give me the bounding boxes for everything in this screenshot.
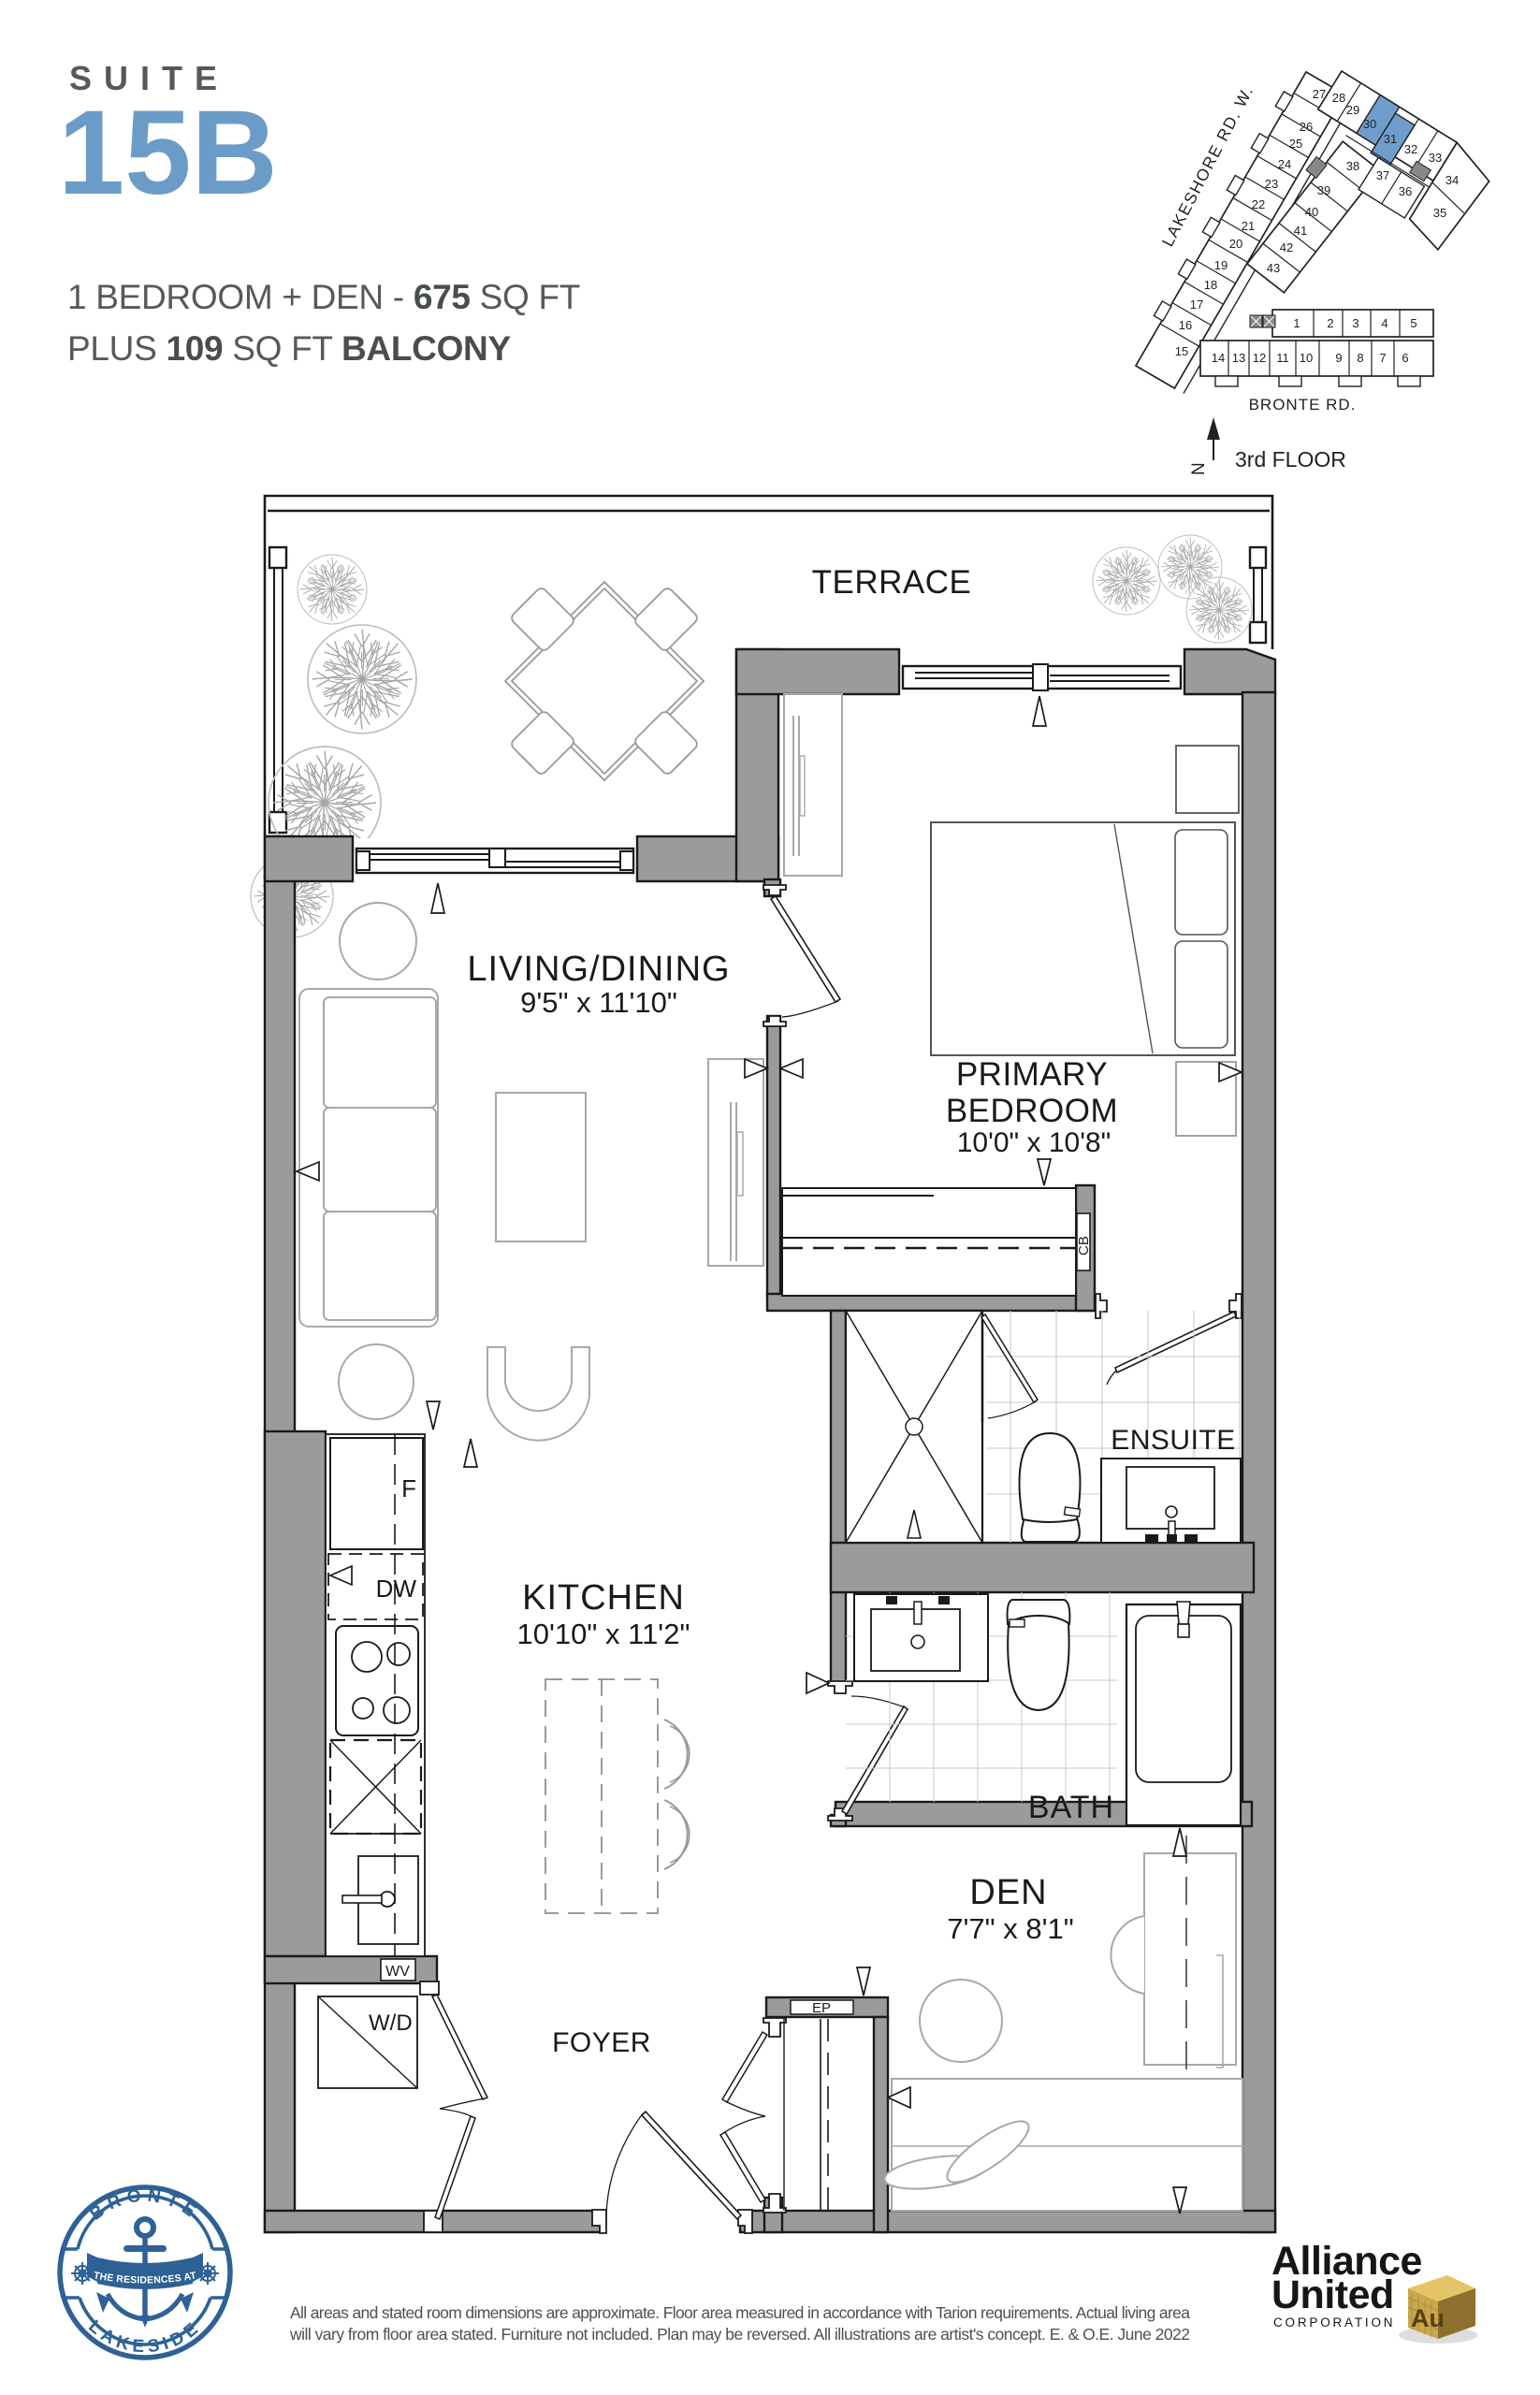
- svg-text:6: 6: [1402, 351, 1408, 365]
- svg-text:PLUS 109 SQ FT BALCONY: PLUS 109 SQ FT BALCONY: [67, 329, 511, 368]
- svg-text:DEN: DEN: [969, 1873, 1047, 1912]
- svg-text:32: 32: [1404, 142, 1417, 156]
- svg-text:All areas and stated room dime: All areas and stated room dimensions are…: [290, 2303, 1190, 2322]
- svg-text:5: 5: [1410, 316, 1417, 330]
- svg-text:30: 30: [1363, 117, 1376, 131]
- svg-text:15B: 15B: [58, 86, 278, 220]
- svg-text:18: 18: [1204, 278, 1217, 292]
- svg-text:WV: WV: [385, 1964, 410, 1980]
- svg-text:28: 28: [1332, 91, 1345, 105]
- svg-text:W/D: W/D: [369, 2010, 413, 2036]
- svg-text:26: 26: [1300, 120, 1313, 134]
- svg-text:FOYER: FOYER: [552, 2027, 651, 2058]
- svg-text:7: 7: [1379, 351, 1386, 365]
- svg-text:4: 4: [1381, 316, 1387, 330]
- svg-text:7'7" x 8'1": 7'7" x 8'1": [947, 1912, 1074, 1945]
- svg-text:KITCHEN: KITCHEN: [522, 1578, 685, 1618]
- svg-text:33: 33: [1429, 151, 1442, 165]
- svg-text:F: F: [401, 1474, 416, 1502]
- svg-text:TERRACE: TERRACE: [812, 564, 972, 601]
- svg-text:25: 25: [1289, 137, 1302, 151]
- svg-text:10'10" x 11'2": 10'10" x 11'2": [517, 1618, 690, 1650]
- svg-text:CB: CB: [1076, 1236, 1092, 1256]
- svg-text:37: 37: [1376, 168, 1389, 182]
- svg-text:United: United: [1271, 2272, 1394, 2317]
- svg-text:CORPORATION: CORPORATION: [1273, 2315, 1395, 2330]
- svg-text:ENSUITE: ENSUITE: [1111, 1425, 1236, 1456]
- svg-text:20: 20: [1229, 237, 1242, 251]
- svg-text:36: 36: [1399, 184, 1412, 198]
- svg-text:17: 17: [1190, 298, 1203, 312]
- svg-text:13: 13: [1232, 351, 1245, 365]
- svg-text:38: 38: [1346, 159, 1359, 173]
- svg-text:3: 3: [1352, 316, 1358, 330]
- svg-text:23: 23: [1265, 177, 1278, 191]
- svg-text:N: N: [1189, 462, 1209, 475]
- svg-text:BEDROOM: BEDROOM: [946, 1093, 1118, 1129]
- svg-text:11: 11: [1276, 351, 1289, 365]
- svg-text:27: 27: [1313, 87, 1326, 101]
- svg-text:34: 34: [1446, 173, 1459, 187]
- svg-text:22: 22: [1252, 197, 1265, 211]
- svg-text:29: 29: [1346, 103, 1359, 117]
- svg-text:9: 9: [1335, 351, 1342, 365]
- svg-text:43: 43: [1267, 261, 1280, 275]
- svg-text:Au: Au: [1411, 2304, 1445, 2332]
- svg-text:BRONTE RD.: BRONTE RD.: [1249, 396, 1357, 414]
- svg-text:will vary from floor area stat: will vary from floor area stated. Furnit…: [289, 2325, 1190, 2344]
- svg-text:BATH: BATH: [1028, 1790, 1114, 1825]
- svg-text:2: 2: [1327, 316, 1333, 330]
- svg-text:10: 10: [1300, 351, 1313, 365]
- svg-text:15: 15: [1175, 344, 1188, 358]
- svg-text:10'0" x 10'8": 10'0" x 10'8": [957, 1127, 1111, 1158]
- svg-text:PRIMARY: PRIMARY: [956, 1056, 1108, 1093]
- svg-text:21: 21: [1242, 219, 1255, 233]
- svg-text:DW: DW: [376, 1575, 417, 1603]
- svg-text:19: 19: [1214, 258, 1228, 272]
- svg-text:41: 41: [1294, 224, 1307, 238]
- svg-text:31: 31: [1384, 132, 1397, 146]
- svg-text:9'5" x 11'10": 9'5" x 11'10": [520, 986, 677, 1019]
- svg-text:40: 40: [1305, 205, 1318, 219]
- svg-text:LIVING/DINING: LIVING/DINING: [467, 950, 730, 989]
- svg-text:1: 1: [1293, 316, 1300, 330]
- svg-text:16: 16: [1179, 318, 1192, 332]
- svg-text:12: 12: [1253, 351, 1266, 365]
- svg-text:1 BEDROOM + DEN - 675 SQ FT: 1 BEDROOM + DEN - 675 SQ FT: [67, 278, 580, 316]
- svg-text:39: 39: [1317, 183, 1330, 197]
- svg-text:EP: EP: [812, 2000, 831, 2016]
- svg-text:14: 14: [1212, 351, 1225, 365]
- svg-text:35: 35: [1433, 206, 1446, 220]
- svg-text:3rd FLOOR: 3rd FLOOR: [1235, 447, 1346, 472]
- svg-text:24: 24: [1278, 157, 1291, 171]
- svg-text:8: 8: [1357, 351, 1363, 365]
- svg-text:42: 42: [1280, 240, 1293, 254]
